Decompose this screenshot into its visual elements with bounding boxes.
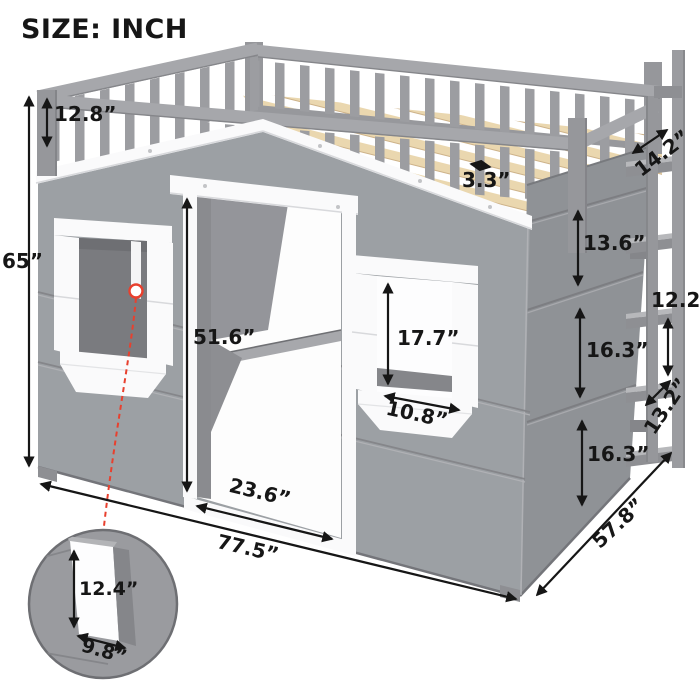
dim-label-slat-spacing: 3.3” — [462, 170, 511, 190]
window-left — [54, 218, 173, 398]
dim-label-window-height: 17.7” — [397, 328, 460, 348]
size-unit-title: SIZE: INCH — [21, 16, 188, 43]
dim-label-rail-height: 12.8” — [54, 104, 117, 124]
product-dimension-diagram: SIZE: INCH 12.8” 65” 3.3” 14.2” 13.6” 12… — [0, 0, 700, 700]
dim-label-rung-spacing: 12.2” — [651, 290, 700, 310]
dim-label-total-height: 65” — [2, 251, 43, 271]
dim-label-door-height: 51.6” — [193, 327, 256, 347]
dim-label-side-panel-top: 13.6” — [583, 233, 646, 253]
dim-label-side-panel-bottom: 16.3” — [587, 444, 650, 464]
hotspot-marker — [130, 285, 143, 298]
dim-label-side-panel-middle: 16.3” — [586, 340, 649, 360]
dim-label-callout-opening-height: 12.4” — [79, 580, 138, 599]
